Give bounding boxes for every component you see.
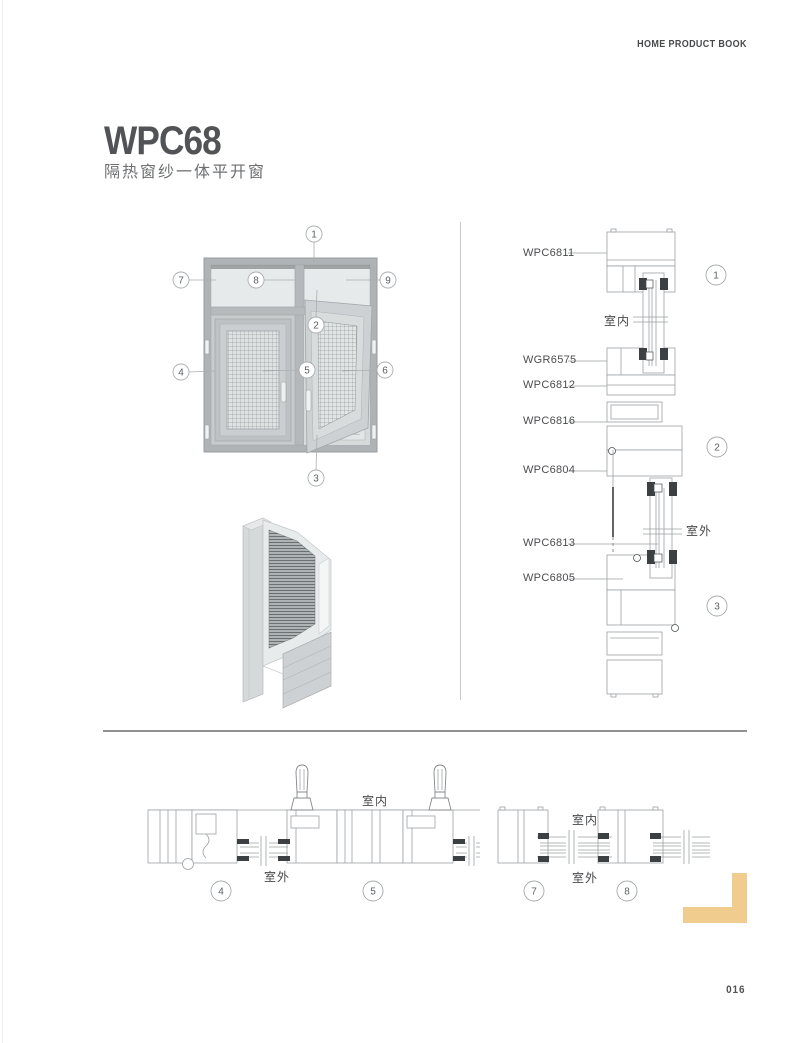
page-number: 016 xyxy=(726,984,745,996)
hl-glazing-b xyxy=(453,836,480,866)
outdoor-label-vertical: 室外 xyxy=(686,522,712,539)
left-screen-sash xyxy=(215,319,291,441)
svg-text:7: 7 xyxy=(178,276,184,287)
indoor-label-right: 室内 xyxy=(572,811,598,828)
book-title: HOME PRODUCT BOOK xyxy=(637,39,747,50)
part-label-wgr6575: WGR6575 xyxy=(523,354,576,366)
svg-text:3: 3 xyxy=(313,474,319,485)
hl-callouts xyxy=(211,881,383,901)
window-handle-icon-a xyxy=(291,765,313,810)
hl-callout-4: 4 xyxy=(218,887,224,898)
part-label-wpc6805: WPC6805 xyxy=(523,572,575,584)
svg-text:9: 9 xyxy=(385,276,391,287)
svg-text:1: 1 xyxy=(311,230,317,241)
product-subtitle: 隔热窗纱一体平开窗 xyxy=(104,158,266,182)
catalog-page: HOME PRODUCT BOOK WPC68 隔热窗纱一体平开窗 xyxy=(0,0,800,1043)
part-label-wpc6804: WPC6804 xyxy=(523,464,575,476)
center-mullion xyxy=(295,265,304,445)
part-label-wpc6811: WPC6811 xyxy=(523,247,574,259)
outdoor-label-right: 室外 xyxy=(572,869,598,886)
hl-profiles xyxy=(148,810,480,870)
horizontal-section-left: 4 5 xyxy=(140,760,480,908)
corner-profile-3d xyxy=(225,508,345,713)
svg-text:1: 1 xyxy=(713,271,719,282)
section-callouts xyxy=(706,265,727,616)
svg-text:2: 2 xyxy=(313,321,319,332)
outdoor-label-left: 室外 xyxy=(264,868,290,885)
indoor-label-vertical: 室内 xyxy=(604,312,630,329)
hr-callout-7: 7 xyxy=(531,887,537,898)
horizontal-divider xyxy=(103,730,747,732)
indoor-label-left: 室内 xyxy=(362,792,388,809)
window-handle-icon-b xyxy=(429,765,451,810)
part-label-wpc6813: WPC6813 xyxy=(523,537,575,549)
part-label-wpc6816: WPC6816 xyxy=(523,415,575,427)
svg-text:6: 6 xyxy=(382,366,388,377)
open-sash-handle xyxy=(306,390,311,411)
svg-text:8: 8 xyxy=(253,276,259,287)
hl-glazing-a xyxy=(237,836,290,866)
svg-text:2: 2 xyxy=(714,443,720,454)
svg-text:3: 3 xyxy=(714,602,720,613)
part-label-wpc6812: WPC6812 xyxy=(523,379,575,391)
window-overview-diagram: 1 2 3 4 5 6 7 8 9 xyxy=(160,222,410,492)
vertical-section-diagram: 1 2 3 xyxy=(455,220,755,715)
corner-accent-horizontal xyxy=(683,907,747,923)
product-model: WPC68 xyxy=(104,121,221,161)
glazing-unit-bottom xyxy=(647,478,677,578)
svg-text:5: 5 xyxy=(304,366,310,377)
page-edge-line xyxy=(2,0,3,1043)
glazing-unit-top xyxy=(639,273,668,373)
left-sash-handle xyxy=(281,382,286,402)
corner-profile-shapes xyxy=(243,518,331,708)
svg-text:4: 4 xyxy=(178,368,184,379)
hl-callout-5: 5 xyxy=(370,887,376,898)
hr-callout-8: 8 xyxy=(624,887,630,898)
